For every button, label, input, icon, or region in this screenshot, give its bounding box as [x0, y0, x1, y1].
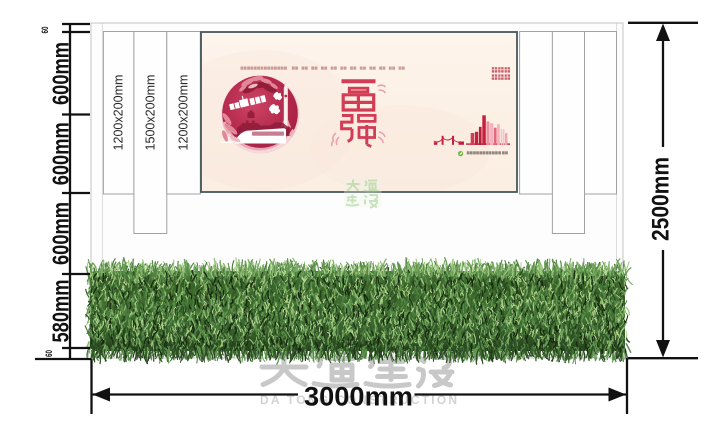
svg-text:60: 60 — [44, 350, 54, 357]
svg-text:2500mm: 2500mm — [648, 157, 675, 241]
svg-text:60: 60 — [40, 27, 50, 34]
svg-text:3000mm: 3000mm — [304, 382, 413, 412]
svg-text:600mm: 600mm — [48, 202, 74, 265]
svg-text:600mm: 600mm — [48, 42, 74, 105]
svg-text:1500x200mm: 1500x200mm — [143, 75, 158, 151]
svg-text:600mm: 600mm — [48, 122, 74, 185]
svg-text:1200x200mm: 1200x200mm — [111, 75, 126, 151]
svg-text:1200x200mm: 1200x200mm — [176, 75, 191, 151]
svg-text:580mm: 580mm — [48, 280, 74, 343]
